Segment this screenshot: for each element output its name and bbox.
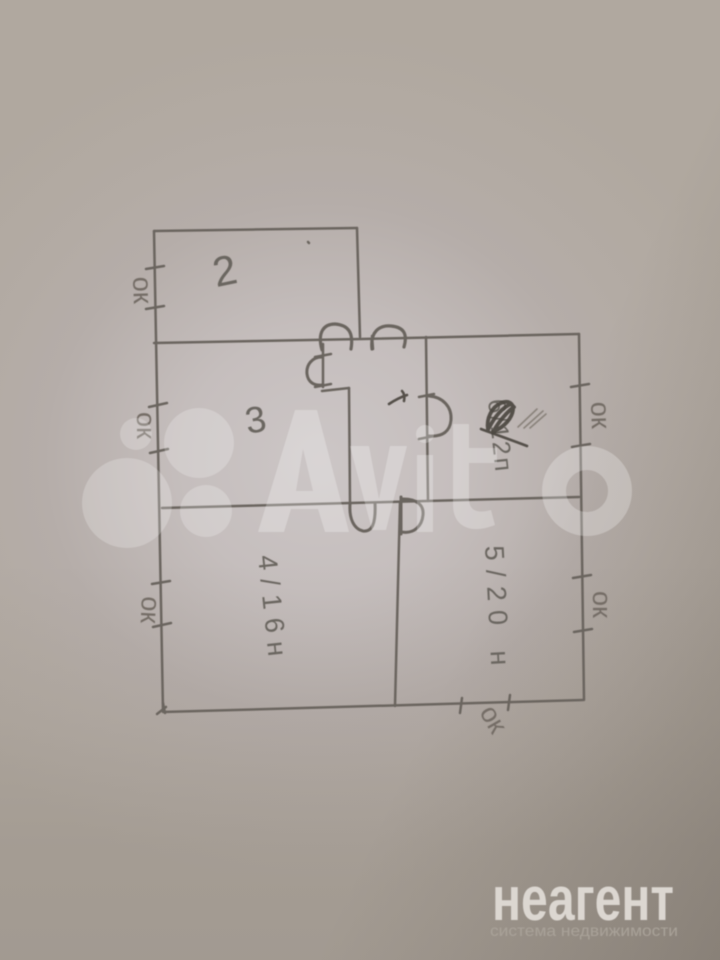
- svg-text:ок: ок: [587, 591, 617, 618]
- svg-text:4/16н: 4/16н: [252, 553, 293, 666]
- svg-text:ок: ок: [585, 401, 616, 429]
- svg-text:система недвижимости: система недвижимости: [490, 923, 678, 940]
- svg-text:5/20 н: 5/20 н: [479, 545, 516, 675]
- svg-text:ок: ок: [135, 596, 166, 625]
- svg-text:ок: ок: [127, 276, 158, 304]
- svg-text:3: 3: [242, 398, 269, 442]
- svg-text:2: 2: [208, 245, 241, 296]
